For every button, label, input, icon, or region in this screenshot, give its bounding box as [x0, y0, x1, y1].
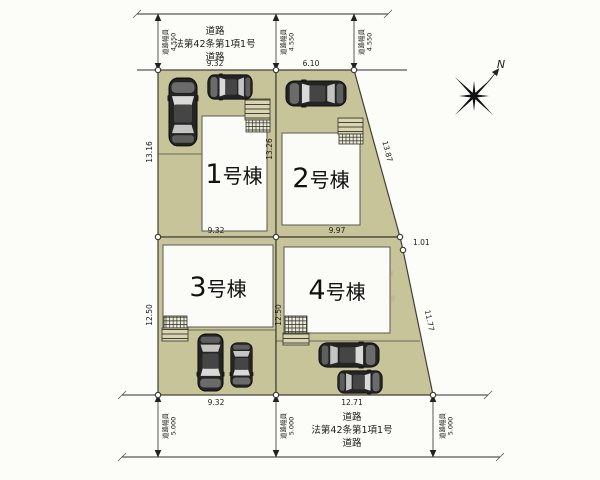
road-width-caption: 道路幅員	[161, 413, 170, 440]
survey-point	[273, 392, 278, 397]
dim-lot3-bottom: 9.32	[208, 398, 225, 407]
road-width-value: 5.000	[447, 417, 455, 436]
dim-lot2-bottom: 9.97	[329, 226, 346, 235]
dim-lot3-left: 12.50	[145, 304, 154, 326]
survey-point	[155, 67, 160, 72]
car-lot1-horizontal	[208, 74, 253, 101]
road-width-value: 4.550	[288, 33, 296, 52]
bottom-road-line3: 道路	[342, 437, 362, 449]
bottom-road-line2: 法第42条第1項1号	[311, 424, 392, 436]
building-4-label: 4号棟	[308, 275, 365, 306]
dim-lot4-top-offset: 1.01	[413, 238, 430, 247]
lot2-stairs-icon	[338, 118, 363, 134]
compass-north-label: N	[497, 58, 505, 71]
building-3-label: 3号棟	[189, 272, 246, 303]
bottom-road-line1: 道路	[342, 411, 362, 423]
building-2-label: 2号棟	[292, 163, 349, 194]
lot4-porch-icon	[285, 316, 307, 333]
lot2-porch-icon	[339, 134, 363, 144]
car-lot1-vertical	[168, 78, 199, 146]
site-plan-drawing: 380	[0, 0, 600, 480]
survey-point	[430, 392, 435, 397]
survey-point	[273, 67, 278, 72]
survey-point	[400, 247, 405, 252]
dim-divider-3-4: 12.50	[274, 304, 283, 326]
site-plan-page: 380	[0, 0, 600, 480]
lot3-porch-icon	[164, 316, 187, 328]
road-width-caption: 道路幅員	[279, 29, 288, 56]
road-width-caption: 道路幅員	[438, 413, 447, 440]
survey-point	[397, 234, 402, 239]
survey-point	[351, 67, 356, 72]
dim-lot4-bottom: 12.71	[341, 398, 363, 407]
car-lot2	[286, 80, 346, 108]
lot1-porch-icon	[246, 120, 270, 132]
building-1-label: 1号棟	[205, 159, 262, 190]
top-road-line1: 道路	[205, 25, 225, 37]
road-width-value: 5.000	[288, 417, 296, 436]
road-width-caption: 道路幅員	[357, 29, 366, 56]
road-width-value: 4.550	[170, 33, 178, 52]
road-width-value: 4.550	[366, 33, 374, 52]
survey-point	[273, 234, 278, 239]
dim-lot1-top: 9.32	[207, 59, 224, 68]
lot3-stairs-icon	[162, 328, 188, 341]
lot4-stairs-icon	[283, 333, 309, 345]
road-width-caption: 道路幅員	[161, 29, 170, 56]
lot1-stairs-icon	[245, 99, 270, 120]
car-lot4-bottom	[338, 370, 383, 395]
survey-point	[155, 392, 160, 397]
dim-lot1-left: 13.16	[145, 141, 154, 163]
top-road-line2: 法第42条第1項1号	[174, 38, 255, 50]
road-width-value: 5.000	[170, 417, 178, 436]
survey-point	[155, 234, 160, 239]
car-lot3-right	[230, 343, 254, 388]
car-lot4-top	[319, 342, 379, 369]
dim-divider-1-2: 13.26	[265, 138, 274, 160]
car-lot3-left	[197, 334, 225, 391]
road-width-caption: 道路幅員	[279, 413, 288, 440]
dim-lot1-bottom: 9.32	[208, 226, 225, 235]
compass-star-icon	[455, 77, 493, 115]
dim-lot2-top: 6.10	[303, 59, 320, 68]
